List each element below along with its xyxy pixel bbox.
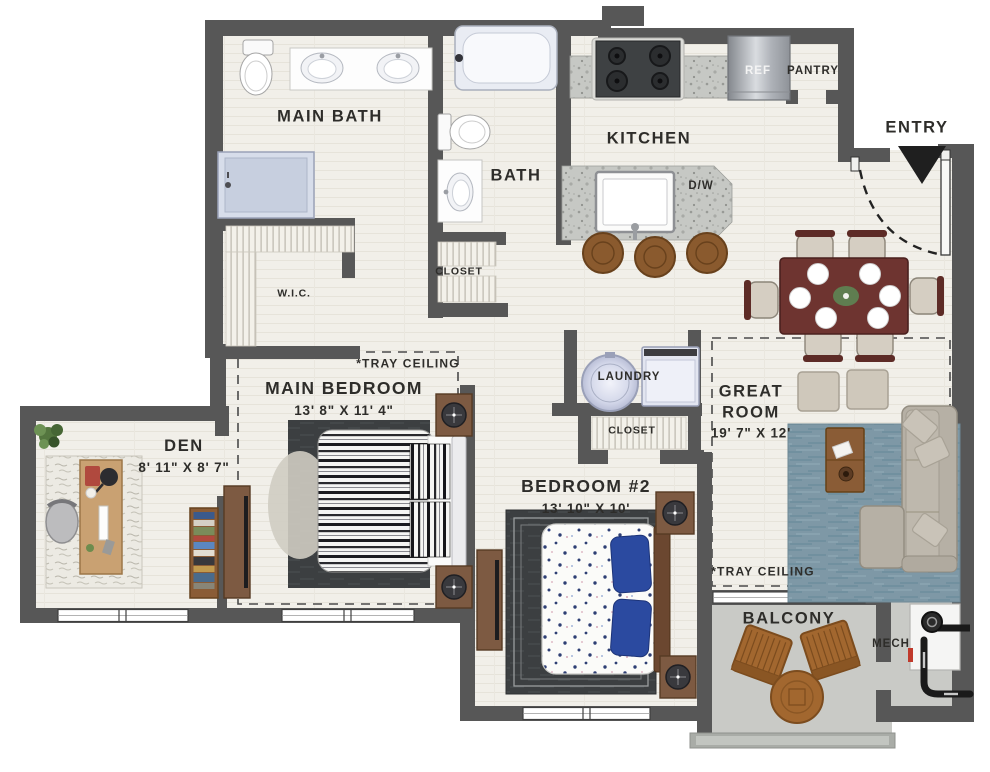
patio-table: [771, 671, 823, 723]
pillow-striped: [410, 444, 450, 499]
main-bedroom-window: [282, 610, 414, 622]
great-room-label: GREAT ROOM 19' 7" X 12': [695, 381, 807, 442]
floor-plan: MAIN BATH BATH KITCHEN PANTRY REF D/W EN…: [0, 0, 990, 772]
dishwasher-label: D/W: [688, 179, 713, 193]
tv-icon: [244, 496, 248, 588]
bath-label: BATH: [490, 166, 541, 187]
island-faucet-icon: [631, 223, 639, 231]
headboard: [654, 526, 670, 672]
office-chair: [46, 501, 78, 543]
bath-closet-label: CLOSET: [435, 265, 482, 278]
tray-ceiling-main-bedroom-label: *TRAY CEILING: [356, 357, 460, 372]
stool-icon: [583, 233, 623, 273]
tv-icon: [495, 560, 499, 640]
toilet-tank: [438, 114, 451, 150]
desk-tray: [85, 466, 100, 486]
toilet-icon: [450, 115, 490, 149]
headboard: [452, 436, 466, 568]
ottoman: [847, 370, 888, 409]
kitchen-label: KITCHEN: [607, 129, 692, 150]
bedroom-2-label: BEDROOM #2 13' 10" X 10': [521, 476, 651, 518]
balcony-label: BALCONY: [743, 609, 836, 630]
desk-lamp-icon: [100, 468, 118, 486]
wic-label: W.I.C.: [277, 287, 310, 300]
pillow-blue: [610, 599, 652, 658]
bedroom-2-window: [523, 708, 650, 720]
main-bedroom-label: MAIN BEDROOM 13' 8" X 11' 4": [265, 378, 423, 420]
entry-door-panel: [941, 158, 950, 255]
bar-stools: [583, 233, 727, 277]
bath-closet-shelf-top: [438, 242, 496, 266]
laundry-label: LAUNDRY: [598, 370, 661, 384]
bath-closet-shelf-bottom: [438, 276, 496, 302]
entry-label: ENTRY: [885, 118, 948, 139]
shower-head-icon: [225, 182, 231, 188]
den-window: [58, 610, 188, 622]
floor-plan-canvas: [0, 0, 990, 772]
main-bath-label: MAIN BATH: [274, 107, 386, 128]
bedroom-2-furniture: [477, 492, 696, 698]
hall-closet-label: CLOSET: [608, 424, 655, 437]
tub-faucet-icon: [455, 54, 463, 62]
wic-shelf-left: [226, 252, 256, 346]
mech-label: MECH: [872, 637, 910, 651]
refrigerator-label: REF: [745, 64, 771, 78]
duct-collar: [922, 612, 942, 632]
pillow-blue: [610, 535, 652, 594]
books: [194, 512, 215, 589]
stool-icon: [687, 233, 727, 273]
balcony-railing-inner: [696, 736, 889, 745]
stool-icon: [635, 237, 675, 277]
keyboard: [99, 506, 108, 540]
den-label: DEN 8' 11" X 8' 7": [138, 436, 229, 477]
pillow-striped: [410, 502, 450, 557]
entry-door-post-left: [851, 157, 859, 171]
tray-ceiling-great-room-label: *TRAY CEILING: [711, 565, 815, 580]
wic-shelf-top: [226, 226, 354, 252]
pantry-label: PANTRY: [787, 64, 839, 78]
